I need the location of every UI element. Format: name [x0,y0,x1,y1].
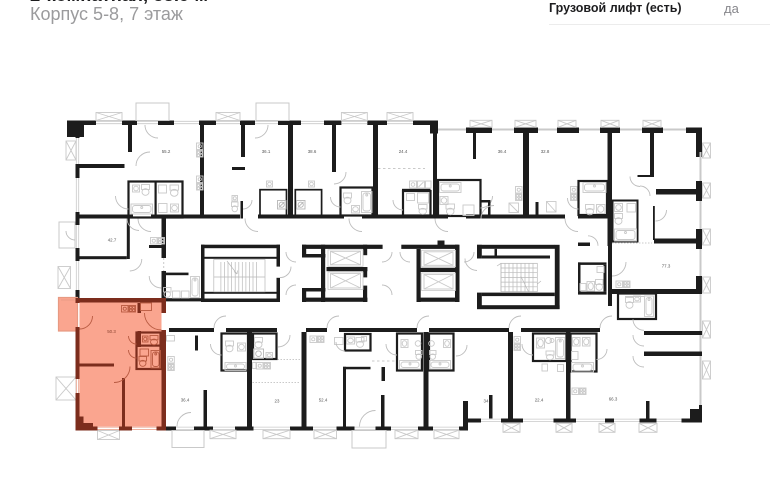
svg-text:22.4: 22.4 [535,398,544,403]
svg-text:36.4: 36.4 [498,149,507,154]
svg-text:38.6: 38.6 [308,149,317,154]
svg-text:34: 34 [484,399,489,404]
svg-text:24.4: 24.4 [399,149,408,154]
svg-text:36.1: 36.1 [262,149,271,154]
svg-text:52.4: 52.4 [319,398,328,403]
svg-text:50.3: 50.3 [107,329,116,334]
svg-text:55.2: 55.2 [162,149,171,154]
svg-text:32.8: 32.8 [541,149,550,154]
svg-text:23: 23 [275,399,280,404]
svg-text:77.3: 77.3 [662,264,671,269]
svg-text:42.7: 42.7 [108,238,117,243]
svg-text:36.4: 36.4 [181,398,190,403]
svg-text:66.3: 66.3 [609,397,618,402]
